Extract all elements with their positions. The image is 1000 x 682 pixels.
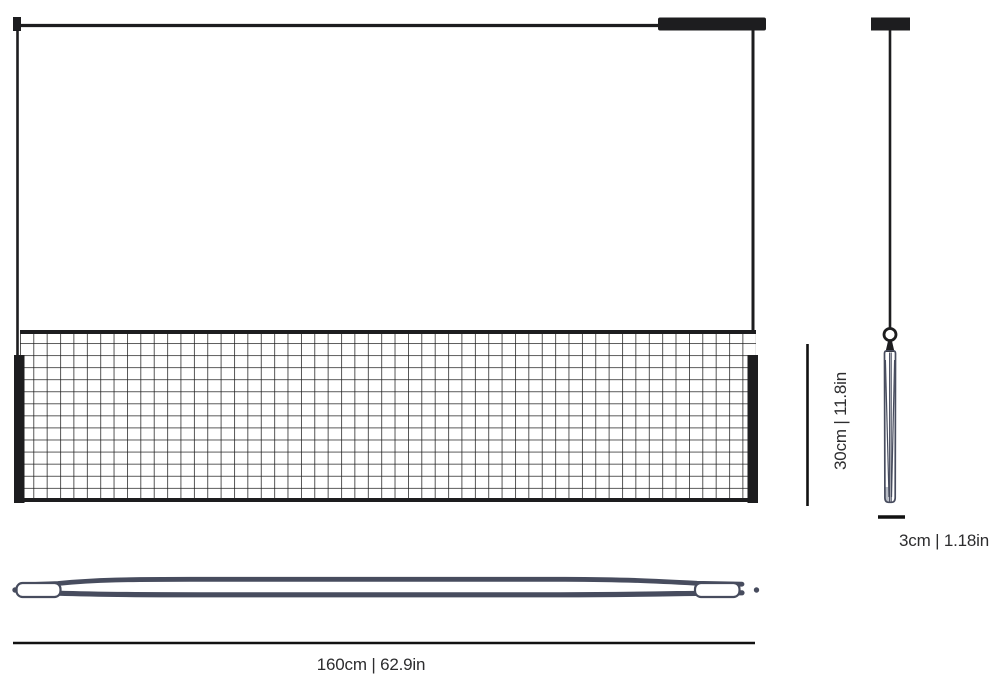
side-ceiling-canopy bbox=[871, 18, 910, 31]
shade-end-cap-left bbox=[14, 355, 25, 503]
bottom-profile-end-cap-right bbox=[695, 583, 740, 597]
bottom-profile-tip-left bbox=[12, 587, 17, 592]
shade-end-cap-right bbox=[748, 355, 759, 503]
bottom-view bbox=[12, 579, 759, 597]
dimension-diagram: 30cm | 11.8in 3cm | 1.18in 160cm | 62.9i… bbox=[0, 0, 1000, 682]
width-dimension-label: 160cm | 62.9in bbox=[317, 655, 425, 675]
shade-taper-line-right bbox=[892, 360, 895, 497]
mesh-grid bbox=[20, 331, 756, 501]
height-dimension-label: 30cm | 11.8in bbox=[831, 372, 851, 470]
bottom-profile-tip-right bbox=[754, 587, 759, 592]
side-view bbox=[871, 18, 910, 503]
mesh-shade bbox=[14, 331, 758, 503]
bottom-profile-bottom-band bbox=[32, 593, 742, 595]
diameter-dimension-label: 3cm | 1.18in bbox=[899, 531, 989, 551]
ceiling-canopy-bar bbox=[658, 18, 766, 31]
hanging-ring bbox=[884, 329, 896, 341]
bottom-profile-top-band bbox=[32, 579, 742, 584]
front-view bbox=[13, 17, 766, 503]
side-shade-profile bbox=[885, 351, 896, 503]
shade-taper-line-left bbox=[885, 360, 889, 497]
drawing-canvas bbox=[0, 0, 1000, 682]
bottom-profile-end-cap-left bbox=[17, 583, 61, 597]
